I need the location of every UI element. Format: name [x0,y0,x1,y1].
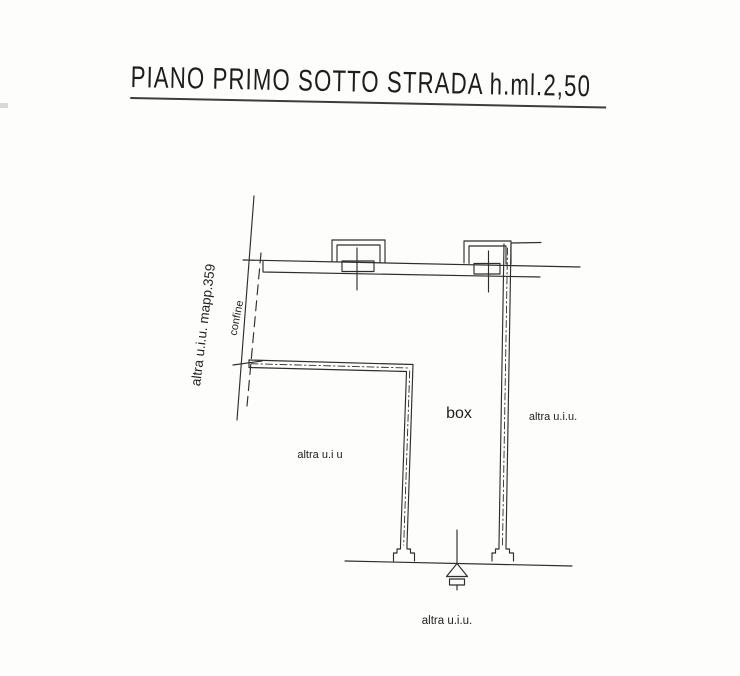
top-wall [243,243,580,278]
interior-wall-footing-left [394,545,401,561]
scanned-plan-page: PIANO PRIMO SOTTO STRADA h.ml.2,50 [0,0,740,676]
right-wall-footing-right [506,545,514,561]
interior-wall-bottom-line [249,368,407,372]
window1-inner-box [337,245,380,263]
label-right-unit: altra u.i.u. [529,411,577,423]
symbol-base-rect [450,579,465,585]
label-left-unit: altra u.i u [297,449,342,461]
label-left-parcel: altra u.i.u. mapp.359 [188,263,218,387]
top-right-stub-line [511,243,541,244]
floor-plan-drawing: altra u.i.u. mapp.359 confine box altra … [0,0,740,676]
right-wall-right-line [506,244,511,545]
interior-wall-vert-centerline [404,371,410,545]
label-box-room: box [446,405,472,422]
right-wall [492,244,514,561]
top-wall-outer-line [243,260,580,267]
boundary-tick [233,361,262,365]
interior-wall-vert-outer-line [407,365,413,546]
window-lightwell-left [332,240,385,290]
window1-outer-box [332,240,385,263]
interior-wall-footing-right [407,545,415,561]
interior-wall-horiz-centerline [251,364,409,368]
interior-wall-top-line [249,360,413,365]
right-wall-footing-left [492,545,499,561]
level-marker-symbol [447,530,468,590]
interior-wall-vert-inner-line [401,372,407,546]
boundary-line-dashed [247,253,261,406]
label-bottom-unit: altra u.i.u. [422,615,473,627]
symbol-triangle [447,564,468,577]
window2-inner-box [469,246,506,264]
